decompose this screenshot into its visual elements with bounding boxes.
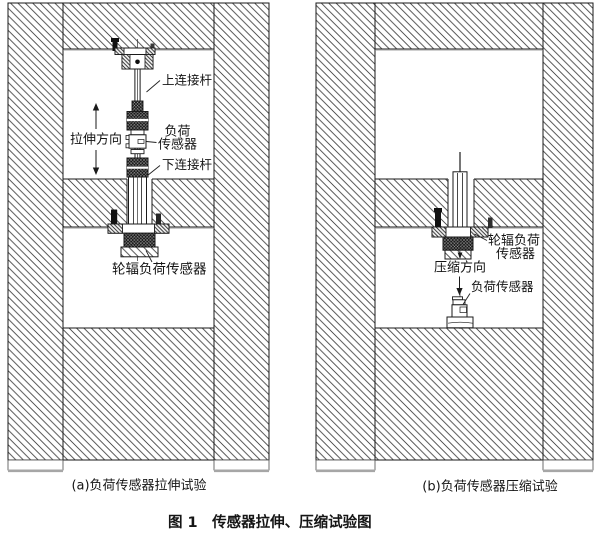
- top-grip-pin: [135, 60, 140, 65]
- load-sensor-leader-b: [463, 294, 470, 305]
- compression-direction-arrow: [456, 277, 462, 296]
- load-sensor-label-b: 负荷传感器: [471, 279, 534, 294]
- panel-b-left-foot: [316, 460, 375, 470]
- spoke-flange-tab-left: [108, 224, 123, 233]
- panel-b: 轮辐负荷 传感器 压缩方向 负荷传感器 (b)负荷传感器压缩试验: [316, 3, 593, 495]
- lower-adapter: [131, 150, 144, 154]
- upper-adapter: [131, 130, 144, 135]
- spoke-sensor-label-b-line2: 传感器: [496, 246, 535, 262]
- spoke-sensor-base: [121, 247, 158, 257]
- panel-b-left-column: [316, 3, 375, 460]
- load-sensor-leader: [147, 142, 157, 143]
- panel-b-caption: (b)负荷传感器压缩试验: [422, 479, 557, 495]
- sensor-test-diagram: 上连接杆 拉伸方向 负荷 传感器 下连接杆 轮辐负荷传感器 (a)负荷传感器拉伸…: [0, 0, 612, 535]
- panel-a-top-beam: [63, 3, 214, 49]
- panel-b-right-foot: [543, 460, 593, 470]
- spoke-sensor-body: [124, 233, 155, 247]
- lower-rod-label: 下连接杆: [162, 157, 213, 172]
- upper-coupling-groove: [127, 119, 149, 122]
- load-sensor-detail: [138, 140, 144, 144]
- panel-b-spoke-sensor-body: [443, 237, 473, 250]
- panel-b-spoke-sensor-base: [445, 250, 471, 259]
- stack-top-bar: [453, 297, 463, 300]
- lower-coupling-groove: [127, 166, 149, 169]
- tension-direction-label: 拉伸方向: [70, 132, 122, 148]
- panel-b-flange-tab-right: [471, 227, 489, 237]
- knurled-nut-small: [132, 101, 143, 112]
- panel-b-cylinder: [453, 172, 467, 227]
- panel-b-bolt-head: [434, 208, 442, 212]
- panel-a-left-column: [8, 3, 63, 460]
- panel-b-bottom-block: [375, 328, 543, 460]
- panel-a-beam-slot: [127, 178, 152, 228]
- top-grip-left: [122, 55, 130, 70]
- panel-a-left-foot: [8, 460, 63, 470]
- panel-b-right-column: [543, 3, 593, 460]
- upper-rod-leader: [147, 81, 161, 93]
- spoke-flange-tab-right: [155, 224, 170, 233]
- top-flange-tab-left: [115, 48, 124, 55]
- panel-a-right-foot: [214, 460, 269, 470]
- compression-direction-label: 压缩方向: [434, 260, 486, 276]
- upper-rod-label: 上连接杆: [162, 73, 213, 88]
- load-sensor-label-line2: 传感器: [158, 137, 197, 153]
- panel-a: 上连接杆 拉伸方向 负荷 传感器 下连接杆 轮辐负荷传感器 (a)负荷传感器拉伸…: [8, 3, 269, 494]
- panel-b-top-beam: [375, 3, 543, 49]
- spoke-pin: [156, 214, 161, 225]
- panel-b-pin: [488, 218, 493, 229]
- panel-b-flange-tab-left: [432, 227, 446, 237]
- lower-rod-leader: [148, 166, 161, 176]
- load-sensor-b-detail: [460, 307, 467, 313]
- top-grip-right: [145, 55, 153, 70]
- load-sensor-tab-top: [126, 136, 129, 140]
- top-flange-tab-right: [146, 48, 155, 55]
- panel-a-right-column: [214, 3, 269, 460]
- figure-canvas: 上连接杆 拉伸方向 负荷 传感器 下连接杆 轮辐负荷传感器 (a)负荷传感器拉伸…: [0, 0, 612, 535]
- panel-a-caption: (a)负荷传感器拉伸试验: [71, 478, 206, 494]
- figure-caption: 图 1 传感器拉伸、压缩试验图: [168, 513, 372, 531]
- load-sensor-tab-bottom: [126, 144, 129, 148]
- spoke-sensor-label-a: 轮辐负荷传感器: [112, 261, 207, 278]
- panel-a-bottom-block: [63, 328, 214, 460]
